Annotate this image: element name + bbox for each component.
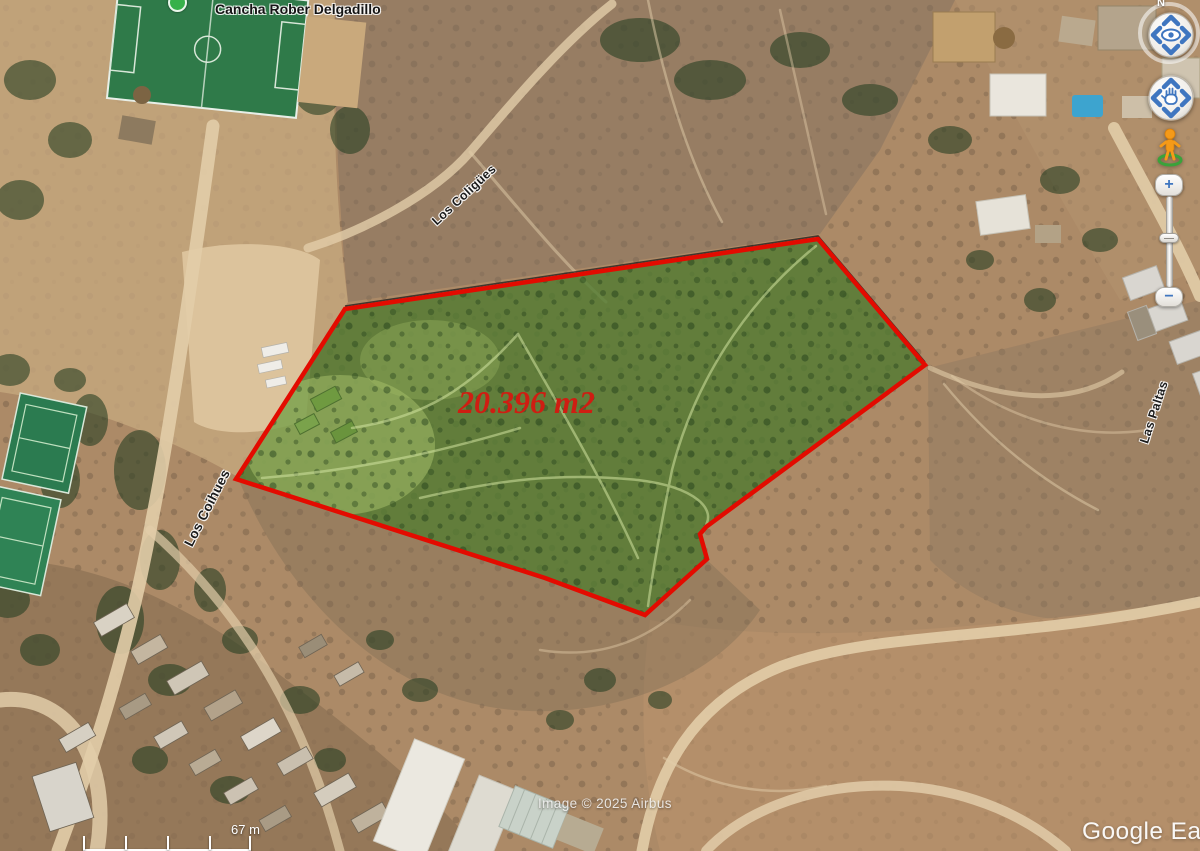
parcel-area-label: 20.396 m2 — [458, 384, 595, 421]
scale-label: 67 m — [231, 822, 260, 837]
placemark-label: Cancha Rober Delgadillo — [215, 1, 381, 17]
scale-tick — [83, 836, 85, 850]
scale-tick — [125, 836, 127, 850]
zoom-in-button[interactable]: + — [1155, 174, 1183, 196]
placemark: Cancha Rober Delgadillo — [168, 0, 381, 17]
look-joystick[interactable] — [1148, 12, 1194, 58]
google-earth-watermark: Google Earth — [1082, 818, 1200, 846]
scale-bar: 67 m — [83, 822, 263, 851]
eye-icon — [1162, 30, 1180, 41]
parcel-polygon[interactable] — [0, 0, 1200, 851]
zoom-slider-handle[interactable] — [1159, 233, 1179, 243]
imagery-attribution: Image © 2025 Airbus — [538, 796, 672, 811]
google-earth-viewport[interactable]: 20.396 m2 Cancha Rober Delgadillo Los Co… — [0, 0, 1200, 851]
scale-tick — [249, 836, 251, 850]
placemark-pin-icon[interactable] — [168, 0, 187, 12]
scale-tick — [167, 836, 169, 850]
parcel-interior — [236, 239, 926, 619]
street-view-pegman[interactable] — [1155, 126, 1185, 168]
compass-north-indicator[interactable]: N — [1157, 0, 1165, 9]
scale-tick — [209, 836, 211, 850]
zoom-out-button[interactable]: − — [1155, 287, 1183, 307]
move-joystick[interactable] — [1148, 75, 1194, 121]
